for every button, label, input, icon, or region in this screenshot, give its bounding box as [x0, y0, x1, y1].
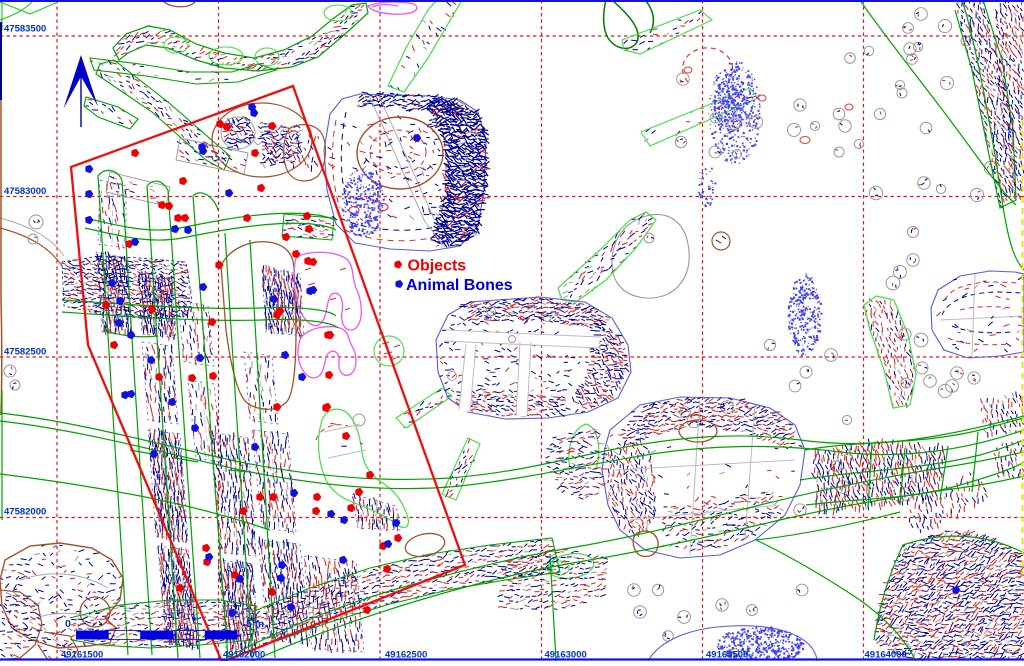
svg-text:47583500: 47583500 — [4, 24, 46, 35]
svg-text:0: 0 — [65, 618, 71, 630]
svg-text:47583000: 47583000 — [4, 186, 46, 197]
svg-text:47582000: 47582000 — [4, 507, 46, 518]
svg-text:47582500: 47582500 — [4, 347, 46, 358]
svg-text:5 m.: 5 m. — [246, 618, 267, 630]
svg-text:Objects: Objects — [408, 258, 467, 275]
svg-text:Animal Bones: Animal Bones — [406, 277, 513, 294]
